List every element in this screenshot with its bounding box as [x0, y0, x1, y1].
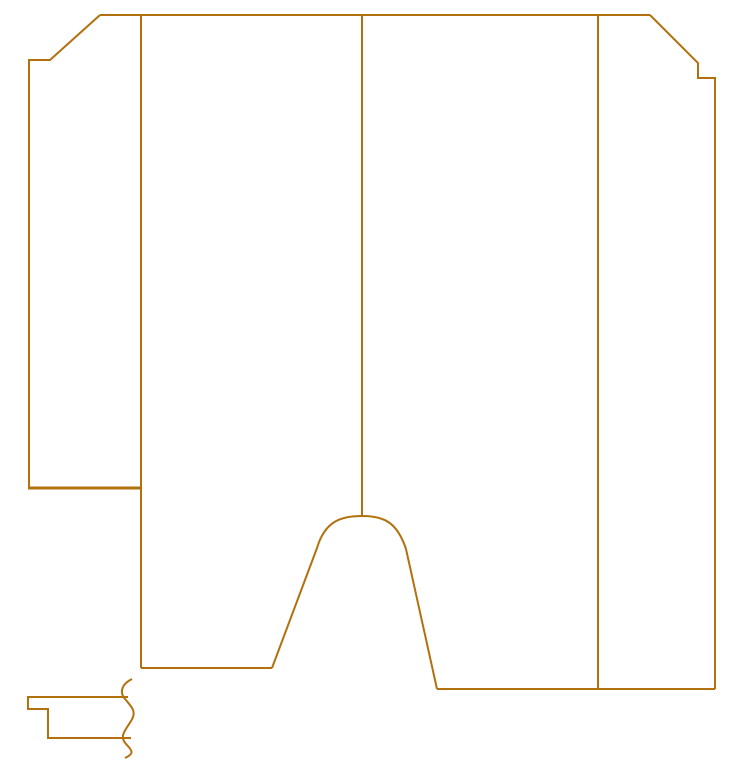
- right-bevel-step-and-right-edge: [650, 15, 715, 689]
- break-line-squiggle: [122, 679, 134, 758]
- dieline-technical-drawing: [0, 0, 734, 767]
- drawing-canvas: [0, 0, 734, 767]
- top-left-bevel-and-left-flap-edge: [29, 15, 100, 488]
- bell-cutout-curve: [272, 516, 437, 689]
- profile-section-outline: [28, 697, 131, 738]
